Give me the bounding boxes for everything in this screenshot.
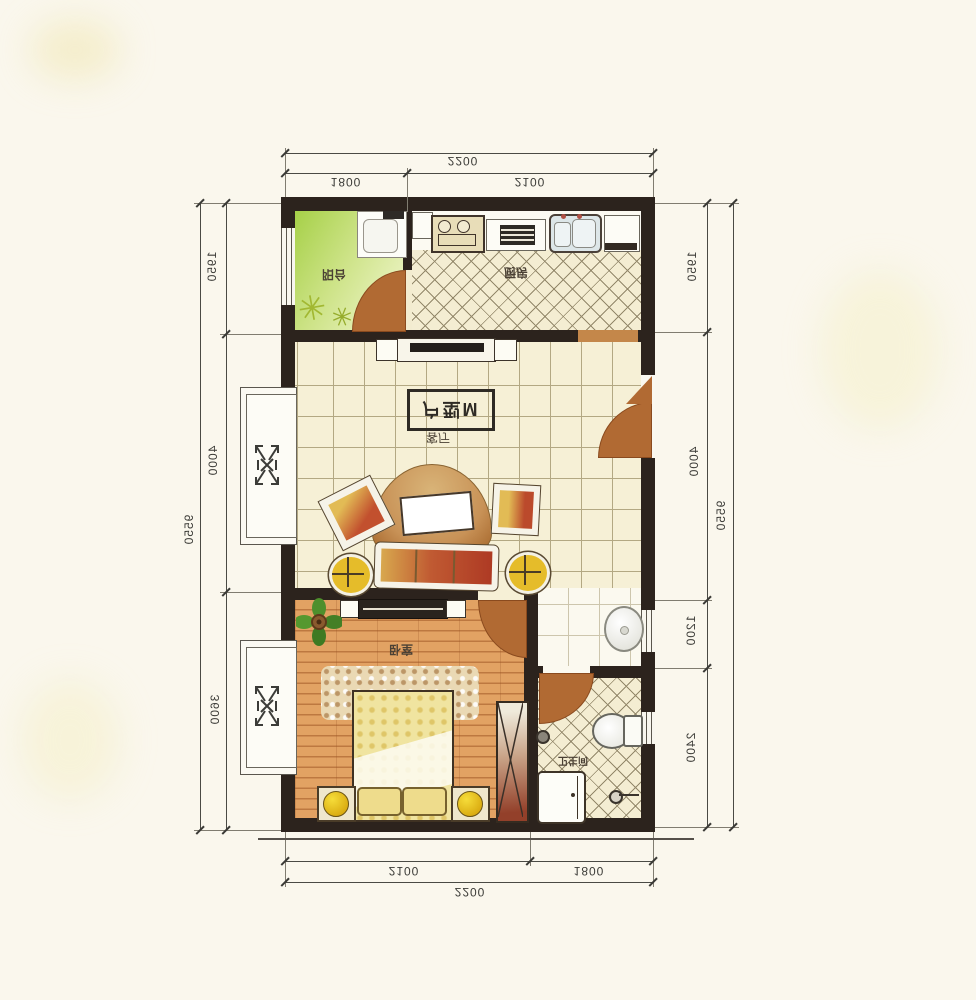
- shower-unit: [537, 771, 586, 824]
- wardrobe-x-icon: [498, 703, 523, 817]
- ext-line: [194, 830, 281, 831]
- dresser-speaker: [340, 600, 360, 618]
- dim-line-bottom-total: [285, 882, 653, 883]
- nightstand-left: [317, 786, 356, 822]
- table-cross: [524, 555, 526, 585]
- dim-bottom-seg1: 2100: [389, 864, 420, 878]
- dim-left-seg2: 4000: [206, 446, 220, 477]
- basin-drain: [620, 626, 629, 635]
- dim-line-left-total: [200, 203, 201, 830]
- pillow: [402, 787, 447, 816]
- dim-bottom-seg2: 1800: [574, 864, 605, 878]
- burner-icon: [457, 220, 470, 233]
- bathroom-window: [641, 712, 655, 744]
- toilet-tank: [623, 715, 643, 747]
- table-cross: [347, 557, 349, 587]
- dim-left-seg3: 3600: [208, 695, 222, 726]
- wall-nook-bath: [590, 666, 641, 678]
- sink-basin: [572, 219, 596, 248]
- washer-panel: [383, 211, 404, 219]
- pillow: [357, 787, 402, 816]
- dim-line-left-segments: [226, 203, 227, 830]
- plant-icon: ✳: [295, 290, 329, 328]
- ext-line: [655, 203, 739, 204]
- paper-stain: [30, 20, 120, 80]
- sofa-cushions: [381, 549, 493, 585]
- floor-drain-icon: [609, 790, 623, 804]
- armchair-cushion: [328, 485, 384, 540]
- dim-left-seg1: 1950: [205, 252, 219, 283]
- balcony-window: [281, 228, 295, 305]
- unit-type-label: 户型M: [423, 397, 480, 423]
- double-bed: [352, 690, 454, 822]
- dim-right-seg4: 2400: [684, 733, 698, 764]
- nightstand-right: [451, 786, 490, 822]
- ext-line: [194, 203, 281, 204]
- dim-right-seg2: 4000: [687, 447, 701, 478]
- lamp-icon: [323, 791, 349, 817]
- floor-plan-page: ✳ ✳ 户型M 客厅: [0, 0, 976, 1000]
- kitchen-corner-cabinet: [412, 212, 433, 239]
- washing-machine: [357, 211, 407, 258]
- dim-line-top-segments: [285, 173, 653, 174]
- tv-speaker: [494, 339, 517, 361]
- hood-grill-icon: [500, 225, 535, 245]
- wardrobe: [496, 701, 529, 823]
- dim-top-total: 2200: [448, 154, 479, 168]
- coffee-table: [399, 491, 474, 536]
- building-outline: [258, 838, 694, 840]
- kitchen-entry-threshold: [578, 330, 638, 342]
- shower-door-line: [577, 776, 579, 819]
- shower-handle: [571, 793, 575, 797]
- wall-top: [281, 197, 655, 211]
- ext-line: [407, 168, 408, 212]
- bay-window-symbol-icon: [252, 677, 282, 735]
- unit-type-label-box: 户型M: [407, 389, 495, 431]
- range-hood: [486, 219, 546, 251]
- sofa-three-seat: [373, 541, 499, 591]
- paper-stain: [820, 270, 940, 430]
- dim-line-bottom-segments: [285, 861, 653, 862]
- drain-pipe-line: [619, 794, 639, 796]
- dim-right-seg1: 1950: [685, 252, 699, 283]
- dim-right-total: 9550: [714, 501, 728, 532]
- stove: [431, 215, 485, 253]
- dim-line-right-segments: [707, 203, 708, 827]
- bedroom-tv-console: [358, 599, 448, 619]
- dim-bottom-total: 2200: [455, 885, 486, 899]
- lamp-icon: [457, 791, 483, 817]
- burner-icon: [438, 220, 451, 233]
- living-room-label: 客厅: [426, 430, 450, 447]
- tv-cabinet: [397, 338, 496, 362]
- ext-line: [220, 592, 281, 593]
- faucet-icon: [577, 214, 582, 219]
- ext-line: [655, 827, 739, 828]
- side-table-left: [329, 554, 373, 596]
- tv-speaker: [376, 339, 399, 361]
- floor-drain-icon: [536, 730, 550, 744]
- dim-line-right-total: [733, 203, 734, 827]
- kitchen-floor: [412, 250, 641, 330]
- sink-basin: [554, 222, 571, 247]
- ext-line: [220, 334, 281, 335]
- washer-drum: [363, 219, 398, 253]
- kitchen-cabinet: [604, 215, 640, 252]
- dim-top-seg1: 1800: [331, 175, 362, 189]
- bay-window-symbol-icon: [252, 436, 282, 494]
- dim-left-total: 9550: [182, 515, 196, 546]
- stove-panel: [438, 234, 476, 246]
- pedestal-basin: [604, 606, 644, 652]
- console-line: [363, 608, 443, 610]
- tv-screen: [410, 343, 484, 352]
- paper-stain: [20, 680, 120, 800]
- side-table-right: [506, 552, 550, 594]
- dim-top-seg2: 2100: [515, 175, 546, 189]
- bedroom-label: 卧室: [389, 642, 413, 659]
- potted-plant-icon: [296, 598, 342, 646]
- armchair-right: [491, 483, 542, 536]
- double-sink: [549, 214, 602, 253]
- armchair-cushion: [498, 490, 534, 529]
- dresser-speaker: [446, 600, 466, 618]
- balcony-label: 阳台: [322, 267, 346, 284]
- dim-right-seg3: 1200: [684, 616, 698, 647]
- faucet-icon: [561, 214, 566, 219]
- bathroom-label: 卫生间: [558, 755, 588, 770]
- kitchen-label: 厨房: [504, 265, 528, 282]
- cabinet-front: [605, 243, 637, 250]
